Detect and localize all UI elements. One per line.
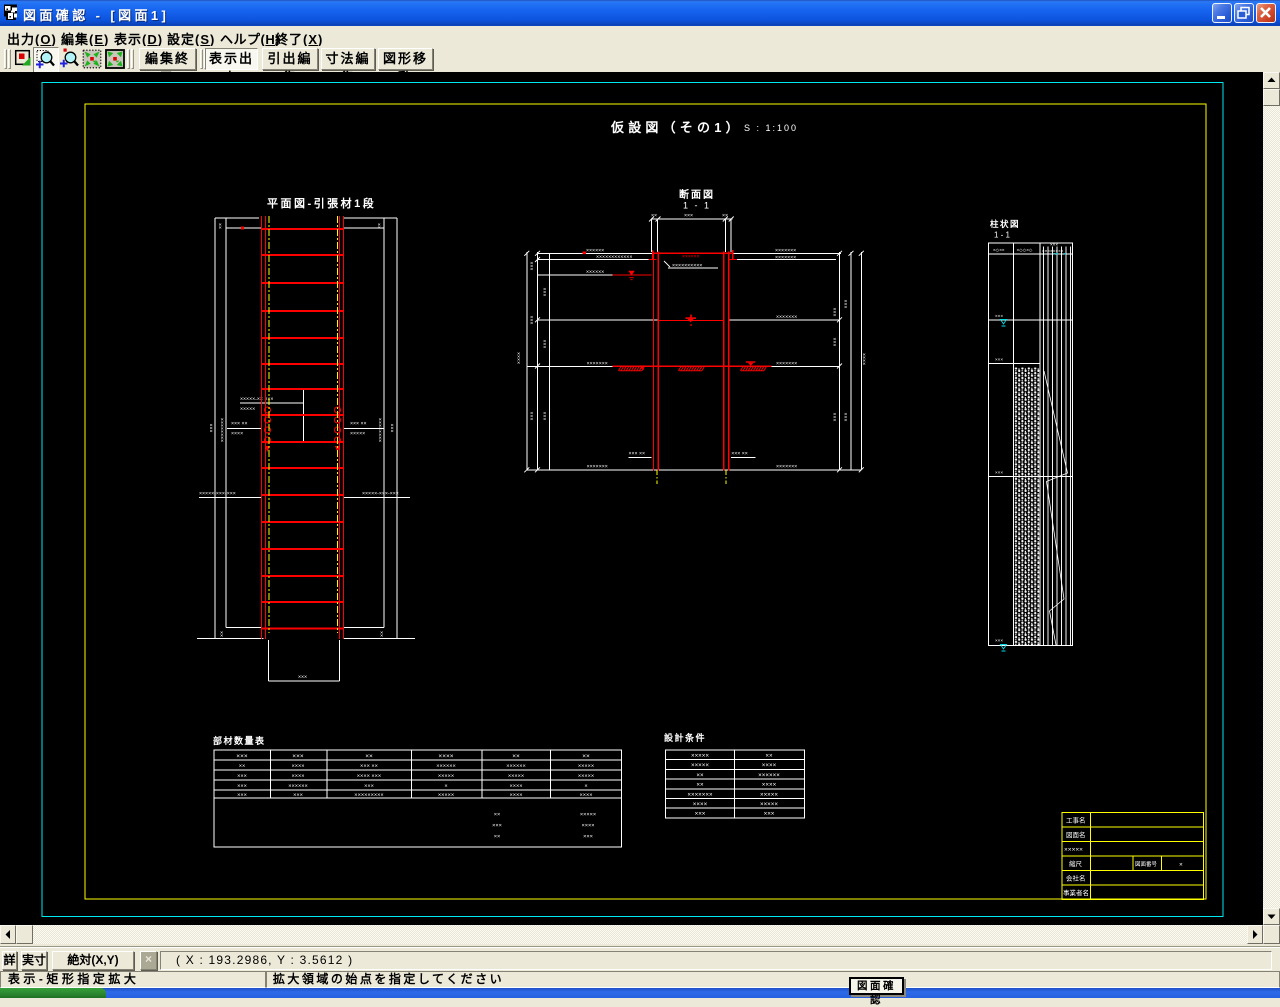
svg-text:××: ×× — [722, 213, 728, 219]
svg-text:×××××××: ××××××× — [776, 464, 797, 470]
svg-text:××××: ×××× — [291, 764, 304, 770]
svg-text:×××: ××× — [543, 339, 549, 348]
svg-text:×××××: ××××× — [760, 801, 778, 808]
svg-text:×××: ××× — [530, 261, 536, 270]
svg-text:×××××××: ××××××× — [776, 361, 797, 367]
svg-text:××××××××: ×××××××× — [220, 418, 226, 442]
svg-text:×××: ××× — [543, 287, 549, 296]
svg-text:××××××××××: ×××××××××× — [672, 263, 702, 269]
svg-text:××××××: ×××××× — [758, 772, 780, 779]
svg-text:××: ×× — [380, 631, 386, 637]
svg-text:×××: ××× — [298, 675, 307, 681]
svg-text:×××××: ××××× — [438, 792, 454, 798]
svg-text:××: ×× — [651, 213, 657, 219]
svg-text:×××××: ××××× — [240, 407, 255, 413]
svg-text:××××××: ×××××× — [506, 764, 526, 770]
svg-text:×××: ××× — [492, 823, 502, 829]
svg-text:××××××××: ×××××××× — [1042, 249, 1064, 254]
svg-text:×××: ××× — [583, 834, 593, 840]
svg-text:工事名: 工事名 — [1066, 816, 1086, 825]
svg-text:××: ×× — [239, 764, 246, 770]
svg-text:××: ×× — [512, 753, 520, 760]
svg-text:会社名: 会社名 — [1066, 874, 1086, 883]
svg-text:×××: ××× — [293, 792, 303, 798]
svg-text:××××: ×××× — [438, 753, 453, 760]
svg-text:×××××: ××××× — [580, 812, 596, 818]
svg-text:×××: ××× — [764, 811, 775, 818]
svg-text:××× ××: ××× ×× — [231, 421, 248, 427]
svg-text:××: ×× — [365, 753, 373, 760]
svg-text:×××: ××× — [364, 784, 374, 790]
svg-text:××××××: ×××××× — [682, 254, 700, 260]
svg-text:×××: ××× — [237, 784, 247, 790]
svg-text:×××××××: ××××××× — [587, 464, 608, 470]
svg-text:×××: ××× — [833, 307, 839, 316]
svg-text:×××: ××× — [237, 792, 247, 798]
svg-text:×××: ××× — [995, 470, 1003, 475]
svg-text:××: ×× — [765, 753, 773, 760]
svg-text:1 - 1: 1 - 1 — [683, 201, 711, 211]
svg-text:図面番号: 図面番号 — [1135, 861, 1158, 868]
svg-text:××××××: ×××××× — [586, 248, 604, 254]
svg-text:×××: ××× — [209, 423, 215, 432]
svg-text:×××: ××× — [543, 411, 549, 420]
svg-text:×××××: ××××× — [691, 753, 709, 760]
svg-text:××××××××××××: ×××××××××××× — [596, 254, 632, 260]
svg-text:××: ×× — [218, 223, 224, 229]
svg-text:××××: ×××× — [231, 431, 243, 437]
svg-text:×××: ××× — [530, 411, 536, 420]
svg-text:××: ×× — [494, 834, 501, 840]
svg-text:××××: ×××× — [762, 782, 777, 789]
svg-text:××× ××: ××× ×× — [350, 421, 367, 427]
svg-text:×××: ××× — [237, 774, 247, 780]
svg-text:×××××: ××××× — [1064, 847, 1083, 854]
svg-text:×××××: ××××× — [691, 762, 709, 769]
svg-text:××: ×× — [494, 812, 501, 818]
svg-text:×××××: ××××× — [578, 764, 594, 770]
svg-text:×××: ××× — [844, 412, 850, 421]
svg-text:××××: ×××× — [517, 352, 523, 364]
svg-text:×××××-×××-×××: ×××××-×××-××× — [199, 491, 236, 497]
svg-text:事業者名: 事業者名 — [1063, 888, 1089, 897]
svg-text:×××××: ××××× — [350, 431, 365, 437]
svg-text:平面図-引張材1段: 平面図-引張材1段 — [267, 196, 376, 210]
svg-text:×××: ××× — [530, 315, 536, 324]
svg-text:×××××: ××××× — [438, 774, 454, 780]
svg-text:×××: ××× — [236, 753, 248, 760]
svg-text:××: ×× — [582, 753, 590, 760]
svg-text:×××××-×× ×××: ×××××-×× ××× — [240, 397, 273, 403]
svg-text:×××××××: ××××××× — [587, 361, 608, 367]
svg-text:部材数量表: 部材数量表 — [213, 735, 266, 746]
svg-text:×××: ××× — [1050, 242, 1058, 247]
svg-text:×: × — [584, 784, 587, 790]
svg-text:縮尺: 縮尺 — [1069, 859, 1083, 868]
svg-text:×××: ××× — [995, 638, 1003, 643]
svg-text:断面図: 断面図 — [679, 188, 715, 201]
svg-text:××××××: ×××××× — [586, 270, 604, 276]
svg-text:×◇◇×◇: ×◇◇×◇ — [1017, 248, 1033, 253]
svg-text:××××: ×××× — [581, 823, 594, 829]
svg-text:×××: ××× — [684, 213, 693, 219]
svg-text:××: ×× — [696, 782, 704, 789]
svg-text:×××: ××× — [844, 299, 850, 308]
svg-text:×××: ××× — [995, 314, 1003, 319]
svg-text:××××××××: ×××××××× — [378, 418, 384, 442]
svg-text:仮設図（その1）: 仮設図（その1） — [610, 120, 743, 135]
svg-text:××××: ×××× — [762, 762, 777, 769]
svg-text:×××××: ××××× — [760, 791, 778, 798]
svg-text:×××××××: ××××××× — [775, 248, 796, 254]
svg-text:××× ××: ××× ×× — [731, 451, 748, 457]
svg-text:×◇××: ×◇×× — [993, 248, 1005, 253]
svg-text:S : 1:100: S : 1:100 — [744, 123, 798, 133]
svg-text:××××: ×××× — [862, 353, 868, 365]
svg-text:×××××: ××××× — [578, 774, 594, 780]
svg-text:×××: ××× — [833, 337, 839, 346]
svg-text:××××: ×××× — [579, 792, 592, 798]
svg-text:×××: ××× — [292, 753, 304, 760]
svg-text:×××: ××× — [695, 811, 706, 818]
svg-text:××: ×× — [696, 772, 704, 779]
svg-text:×××××××: ××××××× — [776, 315, 797, 321]
svg-text:×××: ××× — [995, 357, 1003, 362]
svg-text:××××: ×××× — [693, 801, 708, 808]
svg-text:××××××: ×××××× — [436, 764, 456, 770]
svg-text:××× ××: ××× ×× — [629, 451, 646, 457]
svg-text:××××××: ×××××× — [288, 784, 308, 790]
svg-text:××: ×× — [220, 631, 226, 637]
svg-text:××× ××: ××× ×× — [360, 764, 378, 770]
svg-text:××××: ×××× — [509, 792, 522, 798]
svg-text:×××××××: ××××××× — [775, 255, 796, 261]
svg-text:設計条件: 設計条件 — [664, 732, 706, 743]
svg-text:×××: ××× — [833, 412, 839, 421]
svg-text:1 - 1: 1 - 1 — [994, 231, 1011, 240]
svg-text:×××××××××: ××××××××× — [354, 792, 383, 798]
svg-text:×××××: ××××× — [508, 774, 524, 780]
svg-text:×××××-×××-×××: ×××××-×××-××× — [362, 491, 399, 497]
svg-text:柱状図: 柱状図 — [990, 219, 1020, 229]
svg-text:×: × — [444, 784, 447, 790]
svg-text:××: ×× — [377, 223, 383, 229]
svg-text:×: × — [1179, 862, 1183, 869]
svg-text:×××: ××× — [390, 423, 396, 432]
svg-text:×××× ×××: ×××× ××× — [357, 774, 381, 780]
svg-text:図面名: 図面名 — [1066, 830, 1086, 839]
svg-text:×××××××: ××××××× — [687, 791, 713, 798]
svg-text:××××: ×××× — [291, 774, 304, 780]
svg-text:××××: ×××× — [509, 784, 522, 790]
